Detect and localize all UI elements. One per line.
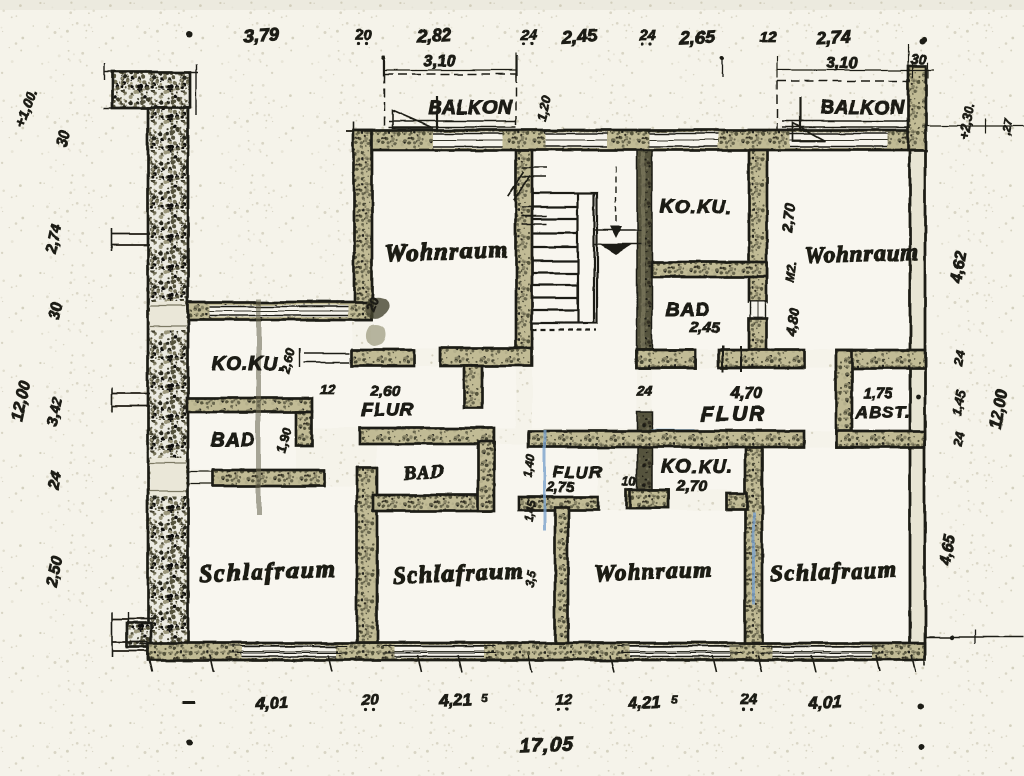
svg-text:Wohnraum: Wohnraum — [804, 239, 920, 268]
svg-text:4,01: 4,01 — [808, 693, 843, 713]
svg-text:4,21: 4,21 — [627, 693, 662, 713]
svg-text:BAD: BAD — [402, 461, 446, 484]
svg-text:12: 12 — [760, 29, 777, 46]
svg-text:3,79: 3,79 — [243, 24, 279, 46]
svg-text:3,10: 3,10 — [826, 55, 857, 72]
svg-text:Schlafraum: Schlafraum — [392, 559, 525, 590]
svg-text:2,82: 2,82 — [416, 24, 453, 46]
svg-text:2,70: 2,70 — [676, 478, 707, 495]
svg-text:3,10: 3,10 — [424, 53, 455, 70]
svg-text:1,75: 1,75 — [864, 385, 894, 402]
svg-text:4,01: 4,01 — [254, 693, 289, 713]
svg-text:24: 24 — [520, 27, 538, 44]
svg-text:4,70: 4,70 — [729, 383, 764, 402]
svg-text:2,45: 2,45 — [561, 25, 599, 47]
svg-text:20: 20 — [361, 691, 379, 708]
svg-text:2,65: 2,65 — [679, 26, 717, 48]
svg-text:2,75: 2,75 — [546, 479, 574, 495]
svg-text:Schlafraum: Schlafraum — [770, 557, 898, 586]
svg-text:FLUR: FLUR — [362, 400, 414, 420]
svg-text:KO.KU.: KO.KU. — [661, 457, 734, 478]
svg-text:30: 30 — [910, 51, 927, 68]
svg-text:2,45: 2,45 — [689, 319, 720, 336]
svg-text:BALKON: BALKON — [428, 98, 513, 119]
svg-text:20: 20 — [354, 27, 372, 44]
svg-text:2,60: 2,60 — [370, 382, 401, 399]
svg-text:BAD: BAD — [211, 430, 255, 451]
svg-text:3,5: 3,5 — [522, 569, 539, 588]
svg-text:24: 24 — [739, 691, 757, 708]
svg-text:Wohnraum: Wohnraum — [594, 557, 714, 586]
svg-text:BALKON: BALKON — [820, 98, 905, 119]
svg-text:Wohnraum: Wohnraum — [385, 237, 509, 267]
svg-text:12: 12 — [319, 381, 335, 397]
svg-text:2,74: 2,74 — [815, 26, 852, 48]
svg-text:BAD: BAD — [666, 300, 710, 321]
svg-text:4,21: 4,21 — [438, 691, 473, 711]
svg-text:KO.KU.: KO.KU. — [660, 197, 733, 218]
svg-text:24: 24 — [636, 383, 653, 399]
svg-text:24: 24 — [638, 27, 656, 44]
svg-text:10: 10 — [622, 474, 637, 489]
svg-text:5: 5 — [671, 693, 678, 707]
svg-text:FLUR: FLUR — [701, 403, 767, 426]
svg-text:KO.KU.: KO.KU. — [212, 354, 285, 375]
svg-text:Schlafraum: Schlafraum — [199, 557, 337, 588]
svg-text:5: 5 — [482, 691, 489, 705]
svg-text:12: 12 — [556, 691, 573, 708]
svg-text:17,05: 17,05 — [519, 733, 575, 757]
svg-text:M2.: M2. — [782, 261, 799, 283]
svg-text:ABST.: ABST. — [855, 403, 911, 422]
